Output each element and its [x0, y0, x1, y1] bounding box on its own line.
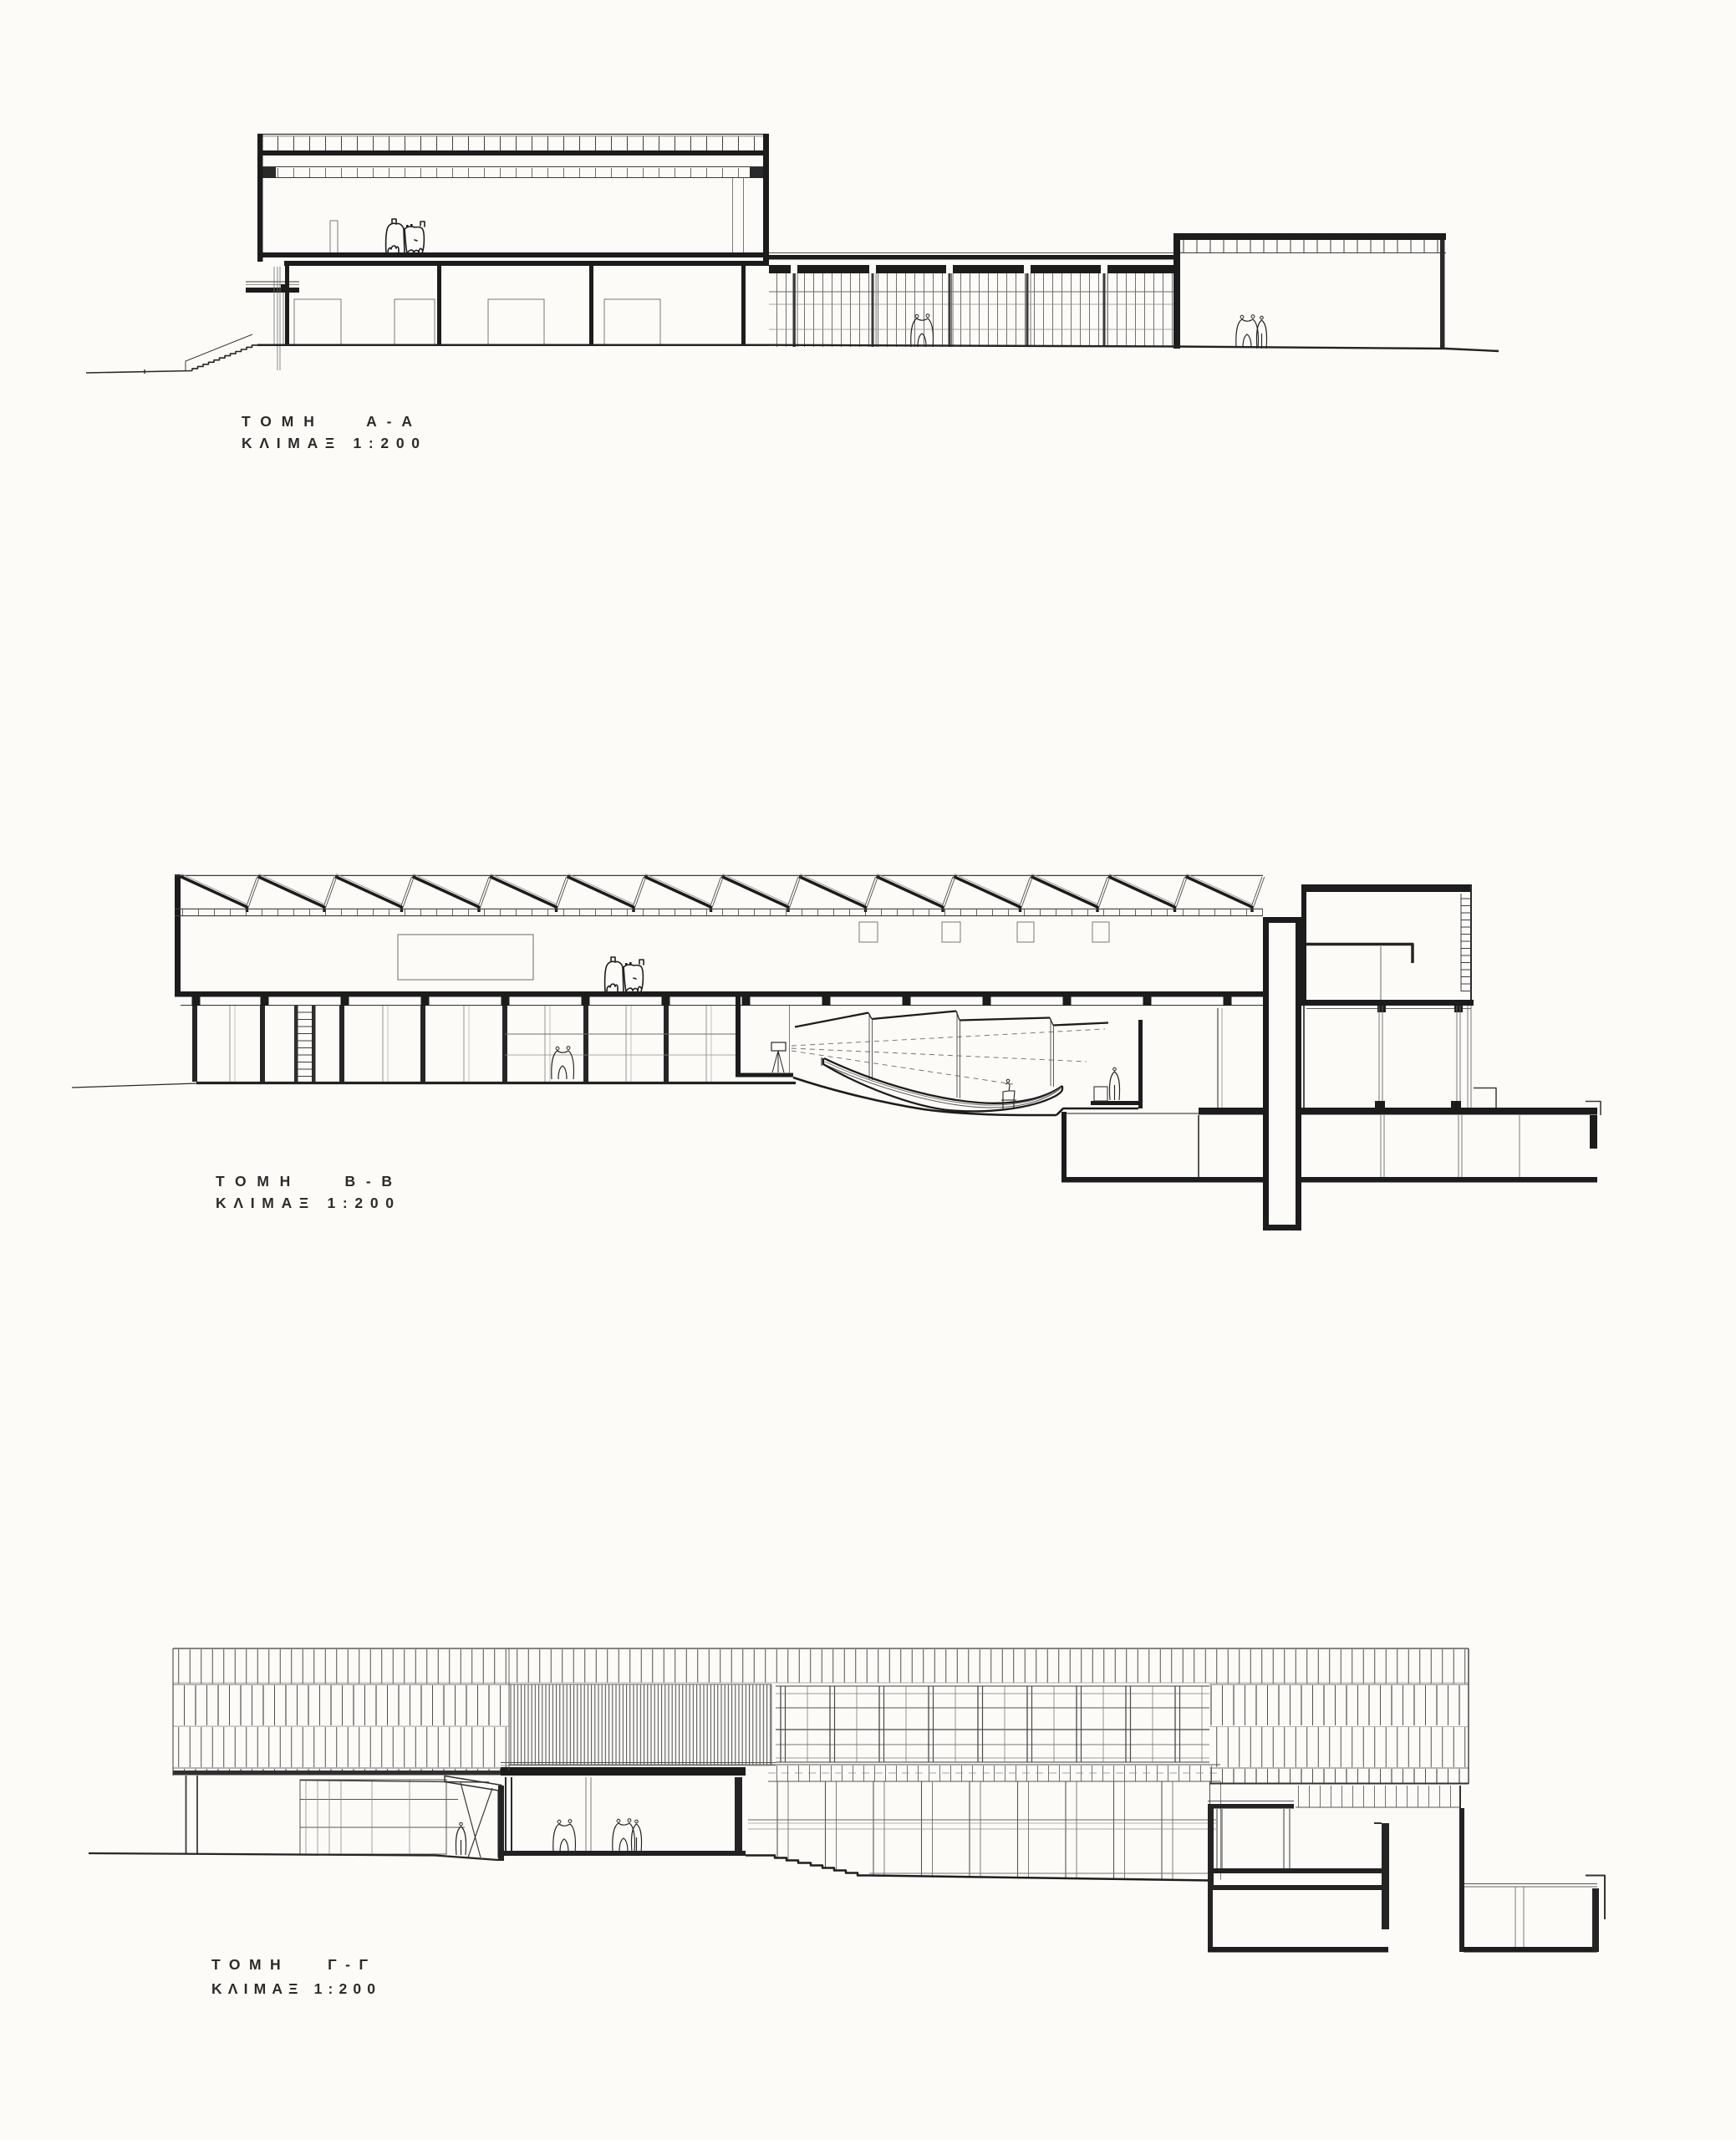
svg-text:ΤΟΜΗ Γ-Γ: ΤΟΜΗ Γ-Γ — [211, 1956, 368, 1973]
svg-text:ΤΟΜΗ Β-Β: ΤΟΜΗ Β-Β — [216, 1173, 392, 1190]
svg-text:ΤΟΜΗ Α-Α: ΤΟΜΗ Α-Α — [242, 413, 412, 430]
